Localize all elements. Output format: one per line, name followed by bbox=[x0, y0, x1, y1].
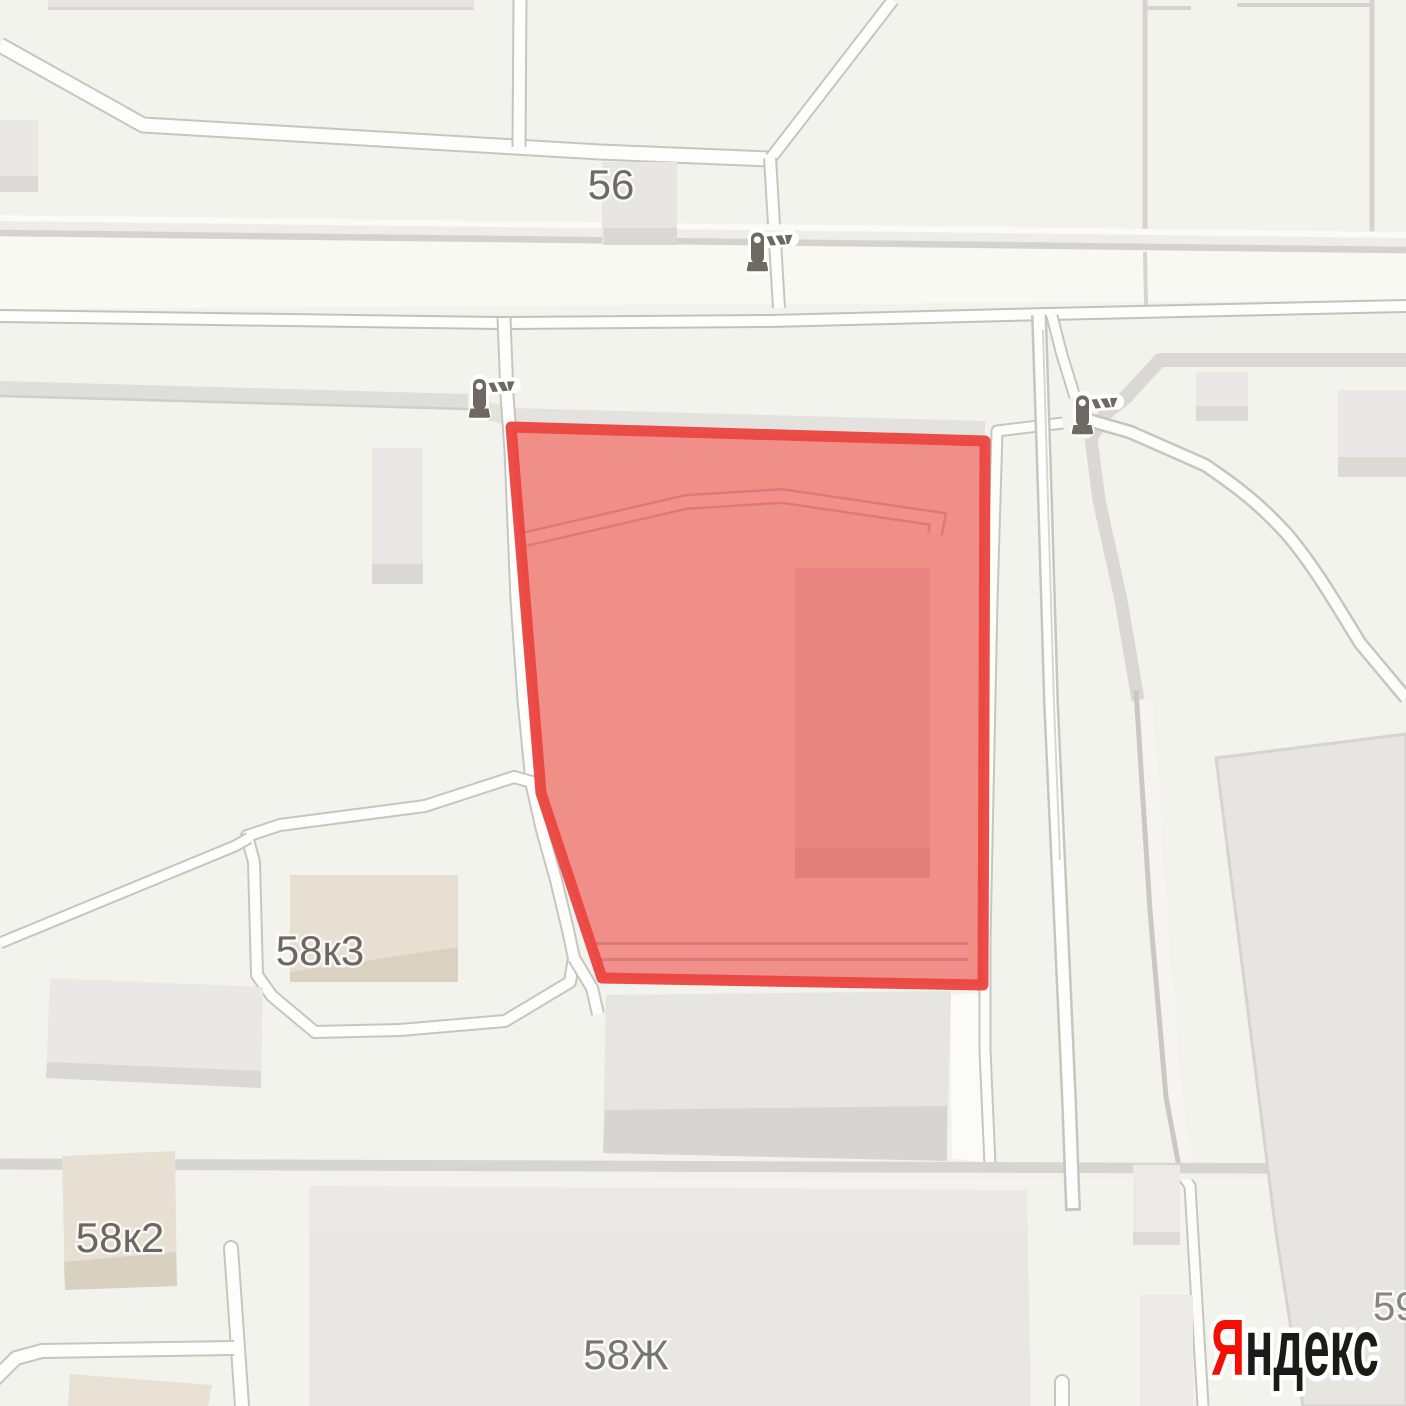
svg-text:Яндекс: Яндекс bbox=[1211, 1303, 1379, 1392]
svg-text:58Ж: 58Ж bbox=[583, 1331, 669, 1378]
svg-text:56: 56 bbox=[588, 161, 635, 208]
svg-text:58к2: 58к2 bbox=[76, 1214, 164, 1261]
svg-text:58к3: 58к3 bbox=[276, 927, 364, 974]
